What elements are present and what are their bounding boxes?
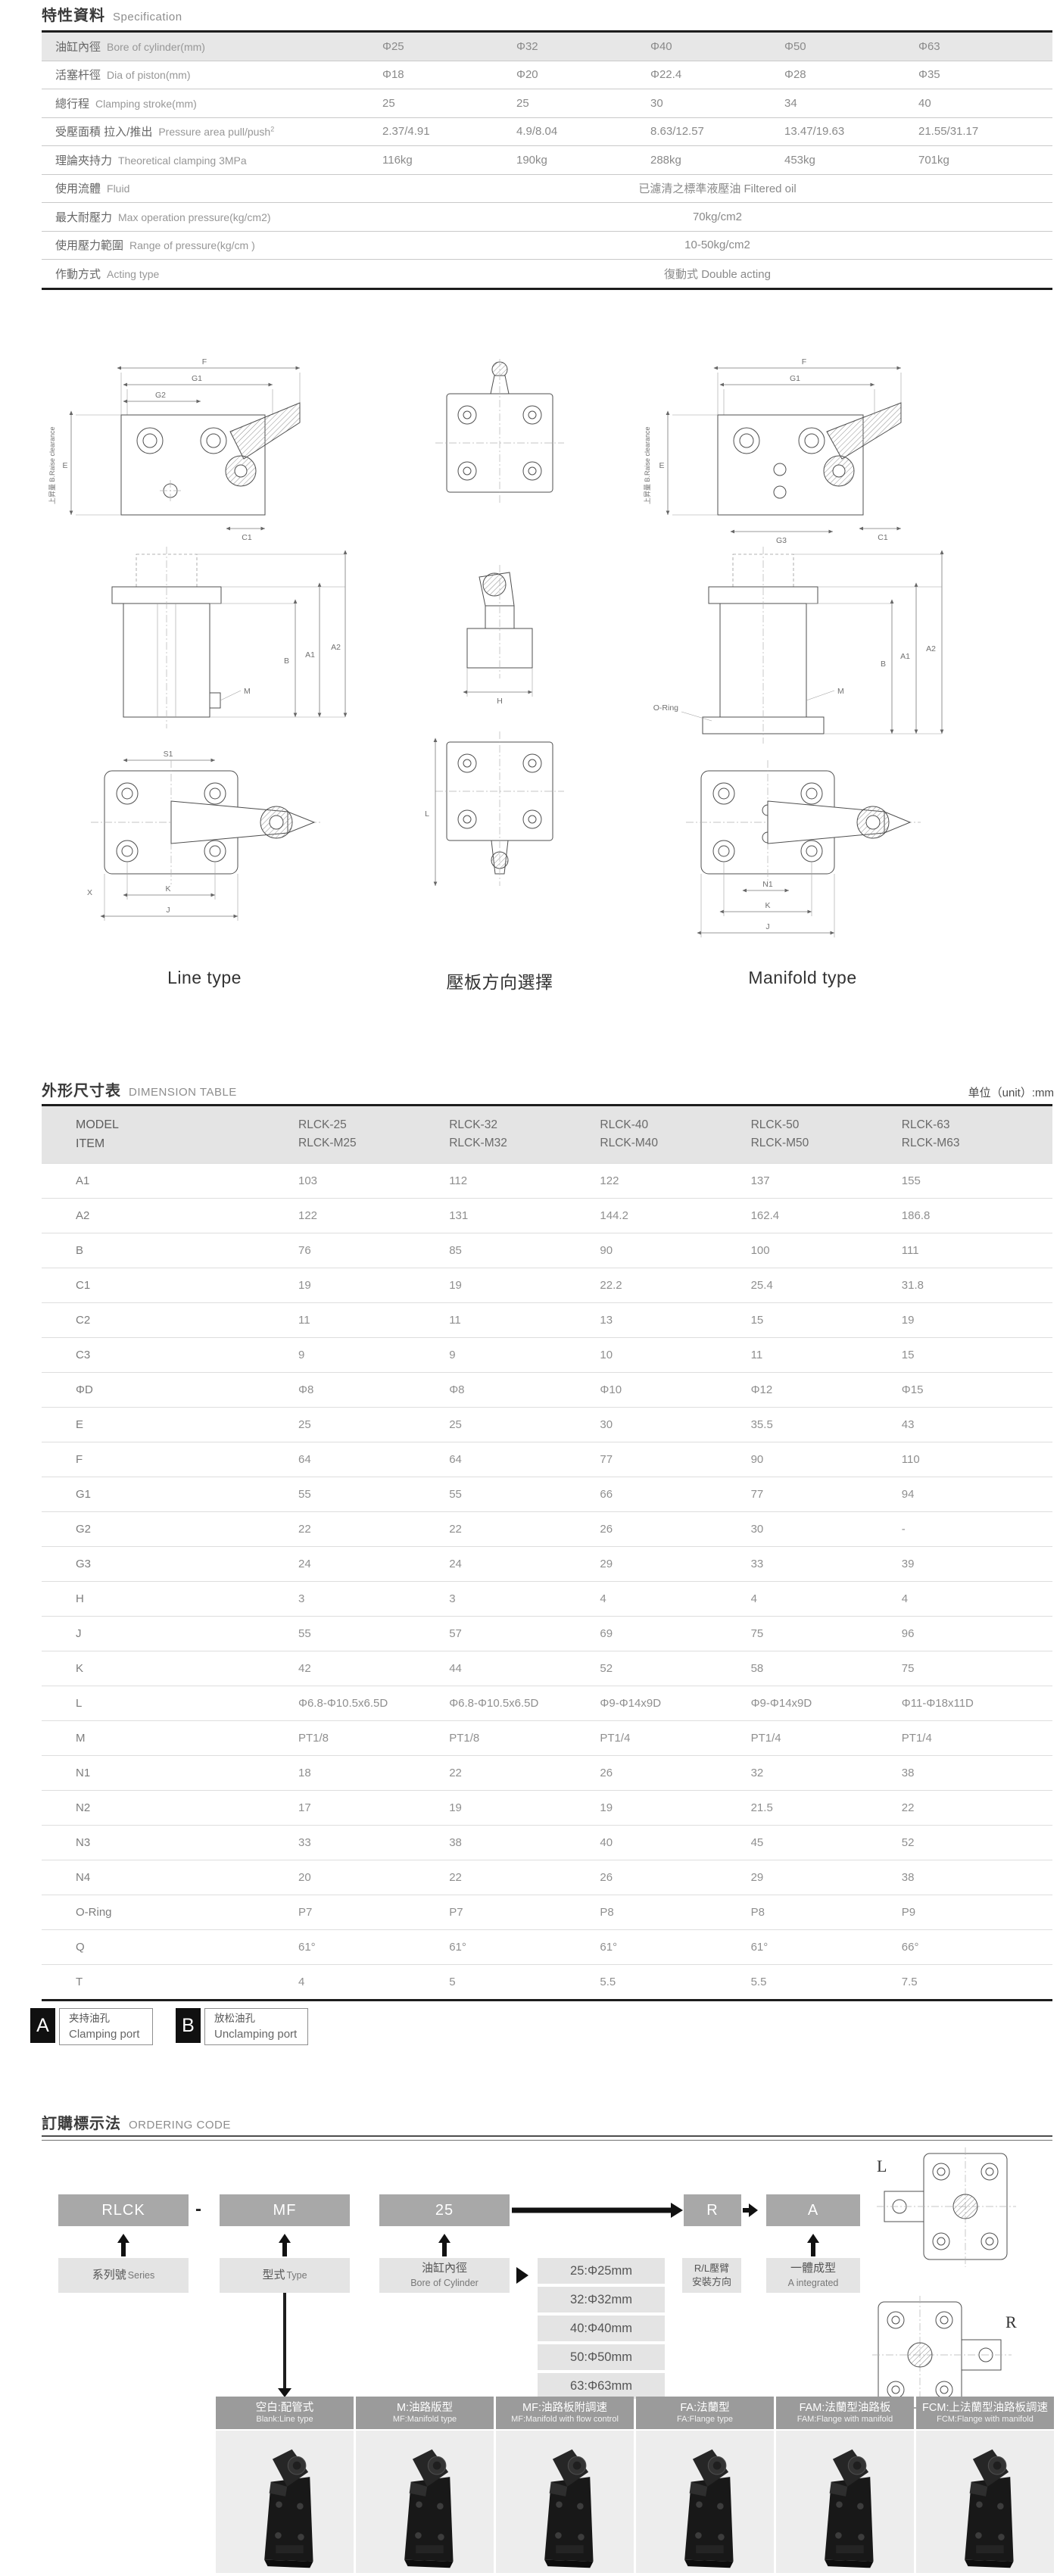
dim-value: 33 <box>751 1558 902 1570</box>
dim-value: Φ6.8-Φ10.5x6.5D <box>449 1697 600 1710</box>
dim-value: 111 <box>902 1244 1052 1257</box>
dim-value: Φ15 <box>902 1383 1052 1396</box>
dim-value: P8 <box>600 1906 750 1919</box>
code-box-direction: R <box>684 2194 741 2226</box>
spec-value: 30 <box>650 97 784 110</box>
dim-value: 43 <box>902 1418 1052 1431</box>
dim-value: 24 <box>449 1558 600 1570</box>
dim-model: RLCK-25RLCK-M25 <box>298 1116 449 1154</box>
dim-table-row: K4244525875 <box>42 1651 1052 1686</box>
dim-value: 69 <box>600 1627 750 1640</box>
type-option-zh: M:油路版型 <box>356 2401 494 2415</box>
dim-label: E <box>659 461 664 470</box>
dim-value: 57 <box>449 1627 600 1640</box>
drawing-clamp-directions: H L <box>413 356 587 947</box>
type-option-en: Blank:Line type <box>216 2415 354 2425</box>
dim-value: 18 <box>298 1767 449 1779</box>
dim-model: RLCK-40RLCK-M40 <box>600 1116 750 1154</box>
type-option-en: MF:Manifold with flow control <box>496 2415 634 2425</box>
dim-label: K <box>765 901 770 910</box>
spec-span-value: 已濾清之標準液壓油 Filtered oil <box>382 180 1052 196</box>
dim-table-row: B768590100111 <box>42 1233 1052 1268</box>
dim-value: P7 <box>449 1906 600 1919</box>
dim-value: 25.4 <box>751 1279 902 1292</box>
dim-value: 35.5 <box>751 1418 902 1431</box>
dim-item: A1 <box>42 1174 298 1187</box>
spec-value: Φ63 <box>918 40 1052 53</box>
dim-value: 94 <box>902 1488 1052 1501</box>
dim-value: 55 <box>298 1627 449 1640</box>
spec-label-en: Theoretical clamping 3MPa <box>118 154 247 167</box>
dim-value: 64 <box>298 1453 449 1466</box>
dim-value: Φ8 <box>449 1383 600 1396</box>
dim-value: PT1/4 <box>600 1732 750 1745</box>
short-arrow <box>743 2202 759 2219</box>
dim-item: L <box>42 1697 298 1710</box>
dim-value: 38 <box>902 1871 1052 1884</box>
spec-label-zh: 理論夾持力 <box>55 154 112 167</box>
product-photo <box>240 2444 329 2573</box>
dimension-title-en: DIMENSION TABLE <box>129 1086 237 1099</box>
dim-label: A1 <box>900 652 910 661</box>
dim-value: - <box>902 1523 1052 1536</box>
caption-clamp-direction: 壓板方向選擇 <box>413 968 587 993</box>
dim-value: Φ11-Φ18x11D <box>902 1697 1052 1710</box>
dim-table-row: N33338404552 <box>42 1825 1052 1860</box>
dim-item: J <box>42 1627 298 1640</box>
bore-options: 25:Φ25mm32:Φ32mm40:Φ40mm50:Φ50mm63:Φ63mm <box>538 2258 665 2402</box>
port-item: B放松油孔Unclamping port <box>176 2008 308 2045</box>
dim-item: G1 <box>42 1488 298 1501</box>
dim-label: G2 <box>155 391 166 400</box>
dim-value: 31.8 <box>902 1279 1052 1292</box>
type-option-photo <box>776 2431 914 2573</box>
spec-table-row: 使用流體Fluid已濾清之標準液壓油 Filtered oil <box>42 175 1052 204</box>
type-option-zh: MF:油路板附調速 <box>496 2401 634 2415</box>
dim-label: B <box>284 656 289 666</box>
dim-label: F <box>202 357 207 366</box>
dim-value: 75 <box>751 1627 902 1640</box>
oring-label: O-Ring <box>653 703 678 713</box>
spec-table-row: 使用壓力範圍Range of pressure(kg/cm )10-50kg/c… <box>42 232 1052 260</box>
dim-item: A2 <box>42 1209 298 1222</box>
dimension-table: MODEL ITEM RLCK-25RLCK-M25RLCK-32RLCK-M3… <box>42 1104 1052 2001</box>
dim-table-row: ΦDΦ8Φ8Φ10Φ12Φ15 <box>42 1372 1052 1407</box>
dim-table-row: Q61°61°61°61°66° <box>42 1929 1052 1964</box>
dim-value: 85 <box>449 1244 600 1257</box>
label-type: 型式Type <box>220 2258 350 2293</box>
dim-label: G1 <box>790 374 800 383</box>
dim-value: 25 <box>449 1418 600 1431</box>
raise-clearance-label: 上昇量 B.Raise clearance <box>48 426 56 504</box>
spec-row-label: 作動方式Acting type <box>42 266 382 282</box>
dim-value: 10 <box>600 1349 750 1361</box>
dim-value: 26 <box>600 1871 750 1884</box>
dim-label: C1 <box>242 533 252 542</box>
dim-value: PT1/8 <box>449 1732 600 1745</box>
dim-item: O-Ring <box>42 1906 298 1919</box>
spec-value: Φ18 <box>382 68 516 81</box>
drawing-manifold-type: F G1 E 上昇量 B.Raise clearance G3 C1 O-Rin… <box>636 356 969 947</box>
spec-row-label: 理論夾持力Theoretical clamping 3MPa <box>42 152 382 168</box>
type-option-label: M:油路版型MF:Manifold type <box>356 2397 494 2429</box>
dim-table-row: N217191921.522 <box>42 1790 1052 1825</box>
dim-item: C3 <box>42 1349 298 1361</box>
label-integrated: 一體成型 A integrated <box>766 2258 860 2293</box>
spec-span-value: 復動式 Double acting <box>382 266 1052 282</box>
bore-option: 63:Φ63mm <box>538 2373 665 2399</box>
dim-value: 26 <box>600 1523 750 1536</box>
label-type-zh: 型式 <box>262 2268 285 2283</box>
type-option-label: FA:法蘭型FA:Flange type <box>636 2397 774 2429</box>
dim-item: T <box>42 1976 298 1988</box>
dim-item: C1 <box>42 1279 298 1292</box>
dim-model-line1: RLCK-40 <box>600 1116 750 1134</box>
dim-table-row: J5557697596 <box>42 1616 1052 1651</box>
up-arrow-bore <box>438 2234 450 2256</box>
dim-model-line1: RLCK-25 <box>298 1116 449 1134</box>
type-option-zh: FCM:上法蘭型油路板調速 <box>916 2401 1054 2415</box>
dim-item: M <box>42 1732 298 1745</box>
label-series-en: Series <box>128 2269 154 2282</box>
dim-model: RLCK-32RLCK-M32 <box>449 1116 600 1154</box>
spec-value: 25 <box>516 97 650 110</box>
spec-label-en: Range of pressure(kg/cm ) <box>129 239 255 251</box>
dim-value: 42 <box>298 1662 449 1675</box>
spec-value: Φ20 <box>516 68 650 81</box>
dim-table-row: A2122131144.2162.4186.8 <box>42 1198 1052 1233</box>
spec-span-value: 10-50kg/cm2 <box>382 239 1052 251</box>
dim-value: 61° <box>298 1941 449 1954</box>
dim-model-line2: RLCK-M63 <box>902 1134 1052 1152</box>
dim-label: G3 <box>776 536 787 545</box>
spec-table: 油缸內徑Bore of cylinder(mm)Φ25Φ32Φ40Φ50Φ63活… <box>42 30 1052 290</box>
code-box-bore: 25 <box>379 2194 510 2226</box>
type-connector-line <box>283 2293 286 2390</box>
code-separator: - <box>195 2199 201 2220</box>
spec-table-row: 最大耐壓力Max operation pressure(kg/cm2)70kg/… <box>42 203 1052 232</box>
label-direction-line2: 安裝方向 <box>692 2275 731 2289</box>
dim-item: F <box>42 1453 298 1466</box>
spec-value: Φ50 <box>784 40 918 53</box>
dim-model-line2: RLCK-M50 <box>751 1134 902 1152</box>
dim-value: 30 <box>751 1523 902 1536</box>
dim-value: 39 <box>902 1558 1052 1570</box>
type-option: MF:油路板附調速MF:Manifold with flow control <box>496 2397 634 2573</box>
dim-value: 33 <box>298 1836 449 1849</box>
dim-value: 61° <box>600 1941 750 1954</box>
dim-value: 11 <box>449 1314 600 1327</box>
raise-clearance-label: 上昇量 B.Raise clearance <box>644 426 651 504</box>
port-label: 夹持油孔Clamping port <box>59 2008 153 2045</box>
dim-item: K <box>42 1662 298 1675</box>
bore-pointer-arrow <box>516 2267 530 2284</box>
spec-section-title: 特性資料 Specification <box>42 3 182 25</box>
dim-value: 21.5 <box>751 1801 902 1814</box>
port-code: A <box>30 2008 55 2043</box>
spec-table-row: 理論夾持力Theoretical clamping 3MPa116kg190kg… <box>42 146 1052 175</box>
dim-value: 22 <box>298 1523 449 1536</box>
dim-value: 66° <box>902 1941 1052 1954</box>
dim-value: 77 <box>751 1488 902 1501</box>
spec-label-en: Acting type <box>107 268 159 280</box>
spec-value: 288kg <box>650 154 784 167</box>
spec-row-label: 使用壓力範圍Range of pressure(kg/cm ) <box>42 237 382 253</box>
dim-value: 144.2 <box>600 1209 750 1222</box>
dim-value: 122 <box>298 1209 449 1222</box>
dim-table-row: G15555667794 <box>42 1477 1052 1511</box>
dim-item: N4 <box>42 1871 298 1884</box>
bore-option: 50:Φ50mm <box>538 2344 665 2370</box>
dim-value: 4 <box>902 1592 1052 1605</box>
dim-value: Φ9-Φ14x9D <box>751 1697 902 1710</box>
dim-header-model-item: MODEL ITEM <box>42 1116 298 1154</box>
dim-value: 90 <box>600 1244 750 1257</box>
spec-label-en: Dia of piston(mm) <box>107 69 190 81</box>
bore-option: 32:Φ32mm <box>538 2287 665 2312</box>
spec-value: 34 <box>784 97 918 110</box>
dim-item: N2 <box>42 1801 298 1814</box>
spec-value: 190kg <box>516 154 650 167</box>
dim-item: Q <box>42 1941 298 1954</box>
dim-value: 4 <box>600 1592 750 1605</box>
type-option-label: 空白:配管式Blank:Line type <box>216 2397 354 2429</box>
spec-table-row: 作動方式Acting type復動式 Double acting <box>42 260 1052 288</box>
dim-value: 64 <box>449 1453 600 1466</box>
spec-value: 40 <box>918 97 1052 110</box>
dim-value: PT1/4 <box>902 1732 1052 1745</box>
dim-label: N1 <box>762 880 773 889</box>
dim-value: Φ10 <box>600 1383 750 1396</box>
unit-label: 单位（unit）:mm <box>968 1084 1054 1100</box>
dim-label: G1 <box>192 374 202 383</box>
dim-item: G3 <box>42 1558 298 1570</box>
spec-value: 21.55/31.17 <box>918 125 1052 138</box>
label-direction: R/L壓臂 安裝方向 <box>682 2258 741 2293</box>
label-bore: 油缸內徑 Bore of Cylinder <box>379 2258 510 2293</box>
dim-value: 24 <box>298 1558 449 1570</box>
dim-table-row: G222222630- <box>42 1511 1052 1546</box>
spec-label-zh: 油缸內徑 <box>55 41 101 54</box>
spec-value: 8.63/12.57 <box>650 125 784 138</box>
dim-value: PT1/8 <box>298 1732 449 1745</box>
label-bore-zh: 油缸內徑 <box>422 2261 467 2276</box>
dim-item: E <box>42 1418 298 1431</box>
type-option-label: MF:油路板附調速MF:Manifold with flow control <box>496 2397 634 2429</box>
type-option-zh: 空白:配管式 <box>216 2401 354 2415</box>
ordering-section-title: 訂購標示法 ORDERING CODE <box>42 2111 231 2133</box>
dim-model: RLCK-63RLCK-M63 <box>902 1116 1052 1154</box>
spec-table-row: 總行程Clamping stroke(mm)2525303440 <box>42 89 1052 118</box>
spec-row-label: 油缸內徑Bore of cylinder(mm) <box>42 39 382 55</box>
product-photo <box>380 2444 469 2573</box>
dim-value: 22 <box>902 1801 1052 1814</box>
dim-value: 77 <box>600 1453 750 1466</box>
spec-label-en: Bore of cylinder(mm) <box>107 41 205 53</box>
dim-value: Φ12 <box>751 1383 902 1396</box>
code-box-type: MF <box>220 2194 350 2226</box>
spec-value: 2.37/4.91 <box>382 125 516 138</box>
type-option-en: FA:Flange type <box>636 2415 774 2425</box>
spec-label-zh: 受壓面積 拉入/推出 <box>55 126 152 139</box>
dim-value: 20 <box>298 1871 449 1884</box>
dim-value: 5.5 <box>751 1976 902 1988</box>
type-option-label: FAM:法蘭型油路板FAM:Flange with manifold <box>776 2397 914 2429</box>
dim-value: 40 <box>600 1836 750 1849</box>
port-label-en: Unclamping port <box>214 2026 297 2043</box>
label-integrated-zh: 一體成型 <box>790 2261 836 2276</box>
dim-value: 7.5 <box>902 1976 1052 1988</box>
datasheet-page: 特性資料 Specification 油缸內徑Bore of cylinder(… <box>0 0 1060 2576</box>
dim-value: 4 <box>298 1976 449 1988</box>
drawing-left-arm: L <box>871 2147 1022 2267</box>
dimension-section-title: 外形尺寸表 DIMENSION TABLE <box>42 1078 237 1100</box>
dim-value: 61° <box>449 1941 600 1954</box>
dim-value: 32 <box>751 1767 902 1779</box>
dim-value: 9 <box>298 1349 449 1361</box>
dim-value: 17 <box>298 1801 449 1814</box>
dim-table-row: G32424293339 <box>42 1546 1052 1581</box>
product-photo <box>940 2444 1030 2573</box>
dim-label: K <box>165 884 170 893</box>
dim-label: A2 <box>331 643 341 652</box>
dim-value: 19 <box>449 1801 600 1814</box>
type-option-photo <box>496 2431 634 2573</box>
dim-table-row: C1191922.225.431.8 <box>42 1268 1052 1302</box>
dim-label: C1 <box>878 533 888 542</box>
port-label: 放松油孔Unclamping port <box>204 2008 308 2045</box>
type-option: FA:法蘭型FA:Flange type <box>636 2397 774 2573</box>
type-option-zh: FA:法蘭型 <box>636 2401 774 2415</box>
dim-label: L <box>425 809 429 819</box>
spec-value: 4.9/8.04 <box>516 125 650 138</box>
dim-table-row: O-RingP7P7P8P8P9 <box>42 1895 1052 1929</box>
dim-value: 110 <box>902 1453 1052 1466</box>
dim-value: PT1/4 <box>751 1732 902 1745</box>
product-photo <box>520 2444 609 2573</box>
dim-value: 5 <box>449 1976 600 1988</box>
dim-value: 3 <box>449 1592 600 1605</box>
dim-value: 55 <box>298 1488 449 1501</box>
type-option-label: FCM:上法蘭型油路板調速FCM:Flange with manifold <box>916 2397 1054 2429</box>
dim-model-line1: RLCK-32 <box>449 1116 600 1134</box>
spec-table-row: 受壓面積 拉入/推出Pressure area pull/push22.37/4… <box>42 118 1052 147</box>
spec-row-label: 活塞杆徑Dia of piston(mm) <box>42 67 382 83</box>
bore-option: 40:Φ40mm <box>538 2316 665 2341</box>
spec-label-zh: 總行程 <box>55 98 89 111</box>
spec-table-row: 活塞杆徑Dia of piston(mm)Φ18Φ20Φ22.4Φ28Φ35 <box>42 61 1052 90</box>
dim-value: 112 <box>449 1174 600 1187</box>
spec-value: Φ22.4 <box>650 68 784 81</box>
type-option-en: FAM:Flange with manifold <box>776 2415 914 2425</box>
dim-value: 19 <box>902 1314 1052 1327</box>
caption-line-type: Line type <box>45 968 363 988</box>
dim-value: 162.4 <box>751 1209 902 1222</box>
label-integrated-en: A integrated <box>788 2277 839 2290</box>
dim-label: J <box>765 922 769 931</box>
type-option-photo <box>216 2431 354 2573</box>
spec-value: 13.47/19.63 <box>784 125 918 138</box>
dim-value: 131 <box>449 1209 600 1222</box>
dim-label: A2 <box>926 644 936 653</box>
dim-table-row: F64647790110 <box>42 1442 1052 1477</box>
dim-table-row: C21111131519 <box>42 1302 1052 1337</box>
dim-value: 103 <box>298 1174 449 1187</box>
spec-title-zh: 特性資料 <box>42 3 105 25</box>
dim-value: 25 <box>298 1418 449 1431</box>
dim-value: 90 <box>751 1453 902 1466</box>
port-label-zh: 放松油孔 <box>214 2011 297 2026</box>
dimension-table-header: MODEL ITEM RLCK-25RLCK-M25RLCK-32RLCK-M3… <box>42 1106 1052 1163</box>
spec-label-zh: 作動方式 <box>55 268 101 281</box>
label-direction-line1: R/L壓臂 <box>694 2262 729 2275</box>
dim-label: E <box>62 461 67 470</box>
spec-row-label: 最大耐壓力Max operation pressure(kg/cm2) <box>42 209 382 225</box>
dim-value: 155 <box>902 1174 1052 1187</box>
spec-label-en: Max operation pressure(kg/cm2) <box>118 211 271 223</box>
dim-value: 19 <box>298 1279 449 1292</box>
spec-label-sup: 2 <box>270 126 274 133</box>
spec-label-zh: 最大耐壓力 <box>55 211 112 224</box>
port-code: B <box>176 2008 201 2043</box>
dim-item: C2 <box>42 1314 298 1327</box>
spec-value: Φ32 <box>516 40 650 53</box>
dim-table-row: LΦ6.8-Φ10.5x6.5DΦ6.8-Φ10.5x6.5DΦ9-Φ14x9D… <box>42 1686 1052 1720</box>
dim-value: 5.5 <box>600 1976 750 1988</box>
dim-value: 13 <box>600 1314 750 1327</box>
spec-value: 701kg <box>918 154 1052 167</box>
dim-label: J <box>166 906 170 915</box>
dim-value: 22 <box>449 1523 600 1536</box>
type-option-photo <box>356 2431 494 2573</box>
dim-model-line1: RLCK-50 <box>751 1116 902 1134</box>
dim-value: 55 <box>449 1488 600 1501</box>
dim-model-line2: RLCK-M32 <box>449 1134 600 1152</box>
dim-value: P8 <box>751 1906 902 1919</box>
ordering-rule <box>42 2135 1052 2141</box>
spec-label-en: Clamping stroke(mm) <box>95 98 197 110</box>
dim-value: P9 <box>902 1906 1052 1919</box>
dim-value: 3 <box>298 1592 449 1605</box>
drawing-line-type: F G1 G2 E 上昇量 B.Raise clearance C1 M B A… <box>45 356 363 947</box>
dim-label: X <box>87 888 92 897</box>
dim-label: H <box>497 697 503 706</box>
type-option: 空白:配管式Blank:Line type <box>216 2397 354 2573</box>
dim-value: 29 <box>600 1558 750 1570</box>
product-photo <box>660 2444 750 2573</box>
dim-table-row: T455.55.57.5 <box>42 1964 1052 1999</box>
spec-table-body: 油缸內徑Bore of cylinder(mm)Φ25Φ32Φ40Φ50Φ63活… <box>42 33 1052 288</box>
spec-label-en: Fluid <box>107 182 129 195</box>
spec-row-label: 總行程Clamping stroke(mm) <box>42 95 382 111</box>
spec-row-label: 使用流體Fluid <box>42 180 382 196</box>
spec-row-label: 受壓面積 拉入/推出Pressure area pull/push2 <box>42 123 382 139</box>
dim-value: 66 <box>600 1488 750 1501</box>
dim-value: 29 <box>751 1871 902 1884</box>
type-option-photo <box>636 2431 774 2573</box>
code-box-integrated: A <box>766 2194 860 2226</box>
spec-value: 25 <box>382 97 516 110</box>
dim-header-item: ITEM <box>76 1135 298 1154</box>
spec-value: Φ28 <box>784 68 918 81</box>
dim-value: 22.2 <box>600 1279 750 1292</box>
dim-value: 96 <box>902 1627 1052 1640</box>
spec-span-value: 70kg/cm2 <box>382 211 1052 223</box>
type-option-photo <box>916 2431 1054 2573</box>
dim-label: A1 <box>305 650 315 660</box>
dim-value: 9 <box>449 1349 600 1361</box>
dim-value: 19 <box>449 1279 600 1292</box>
